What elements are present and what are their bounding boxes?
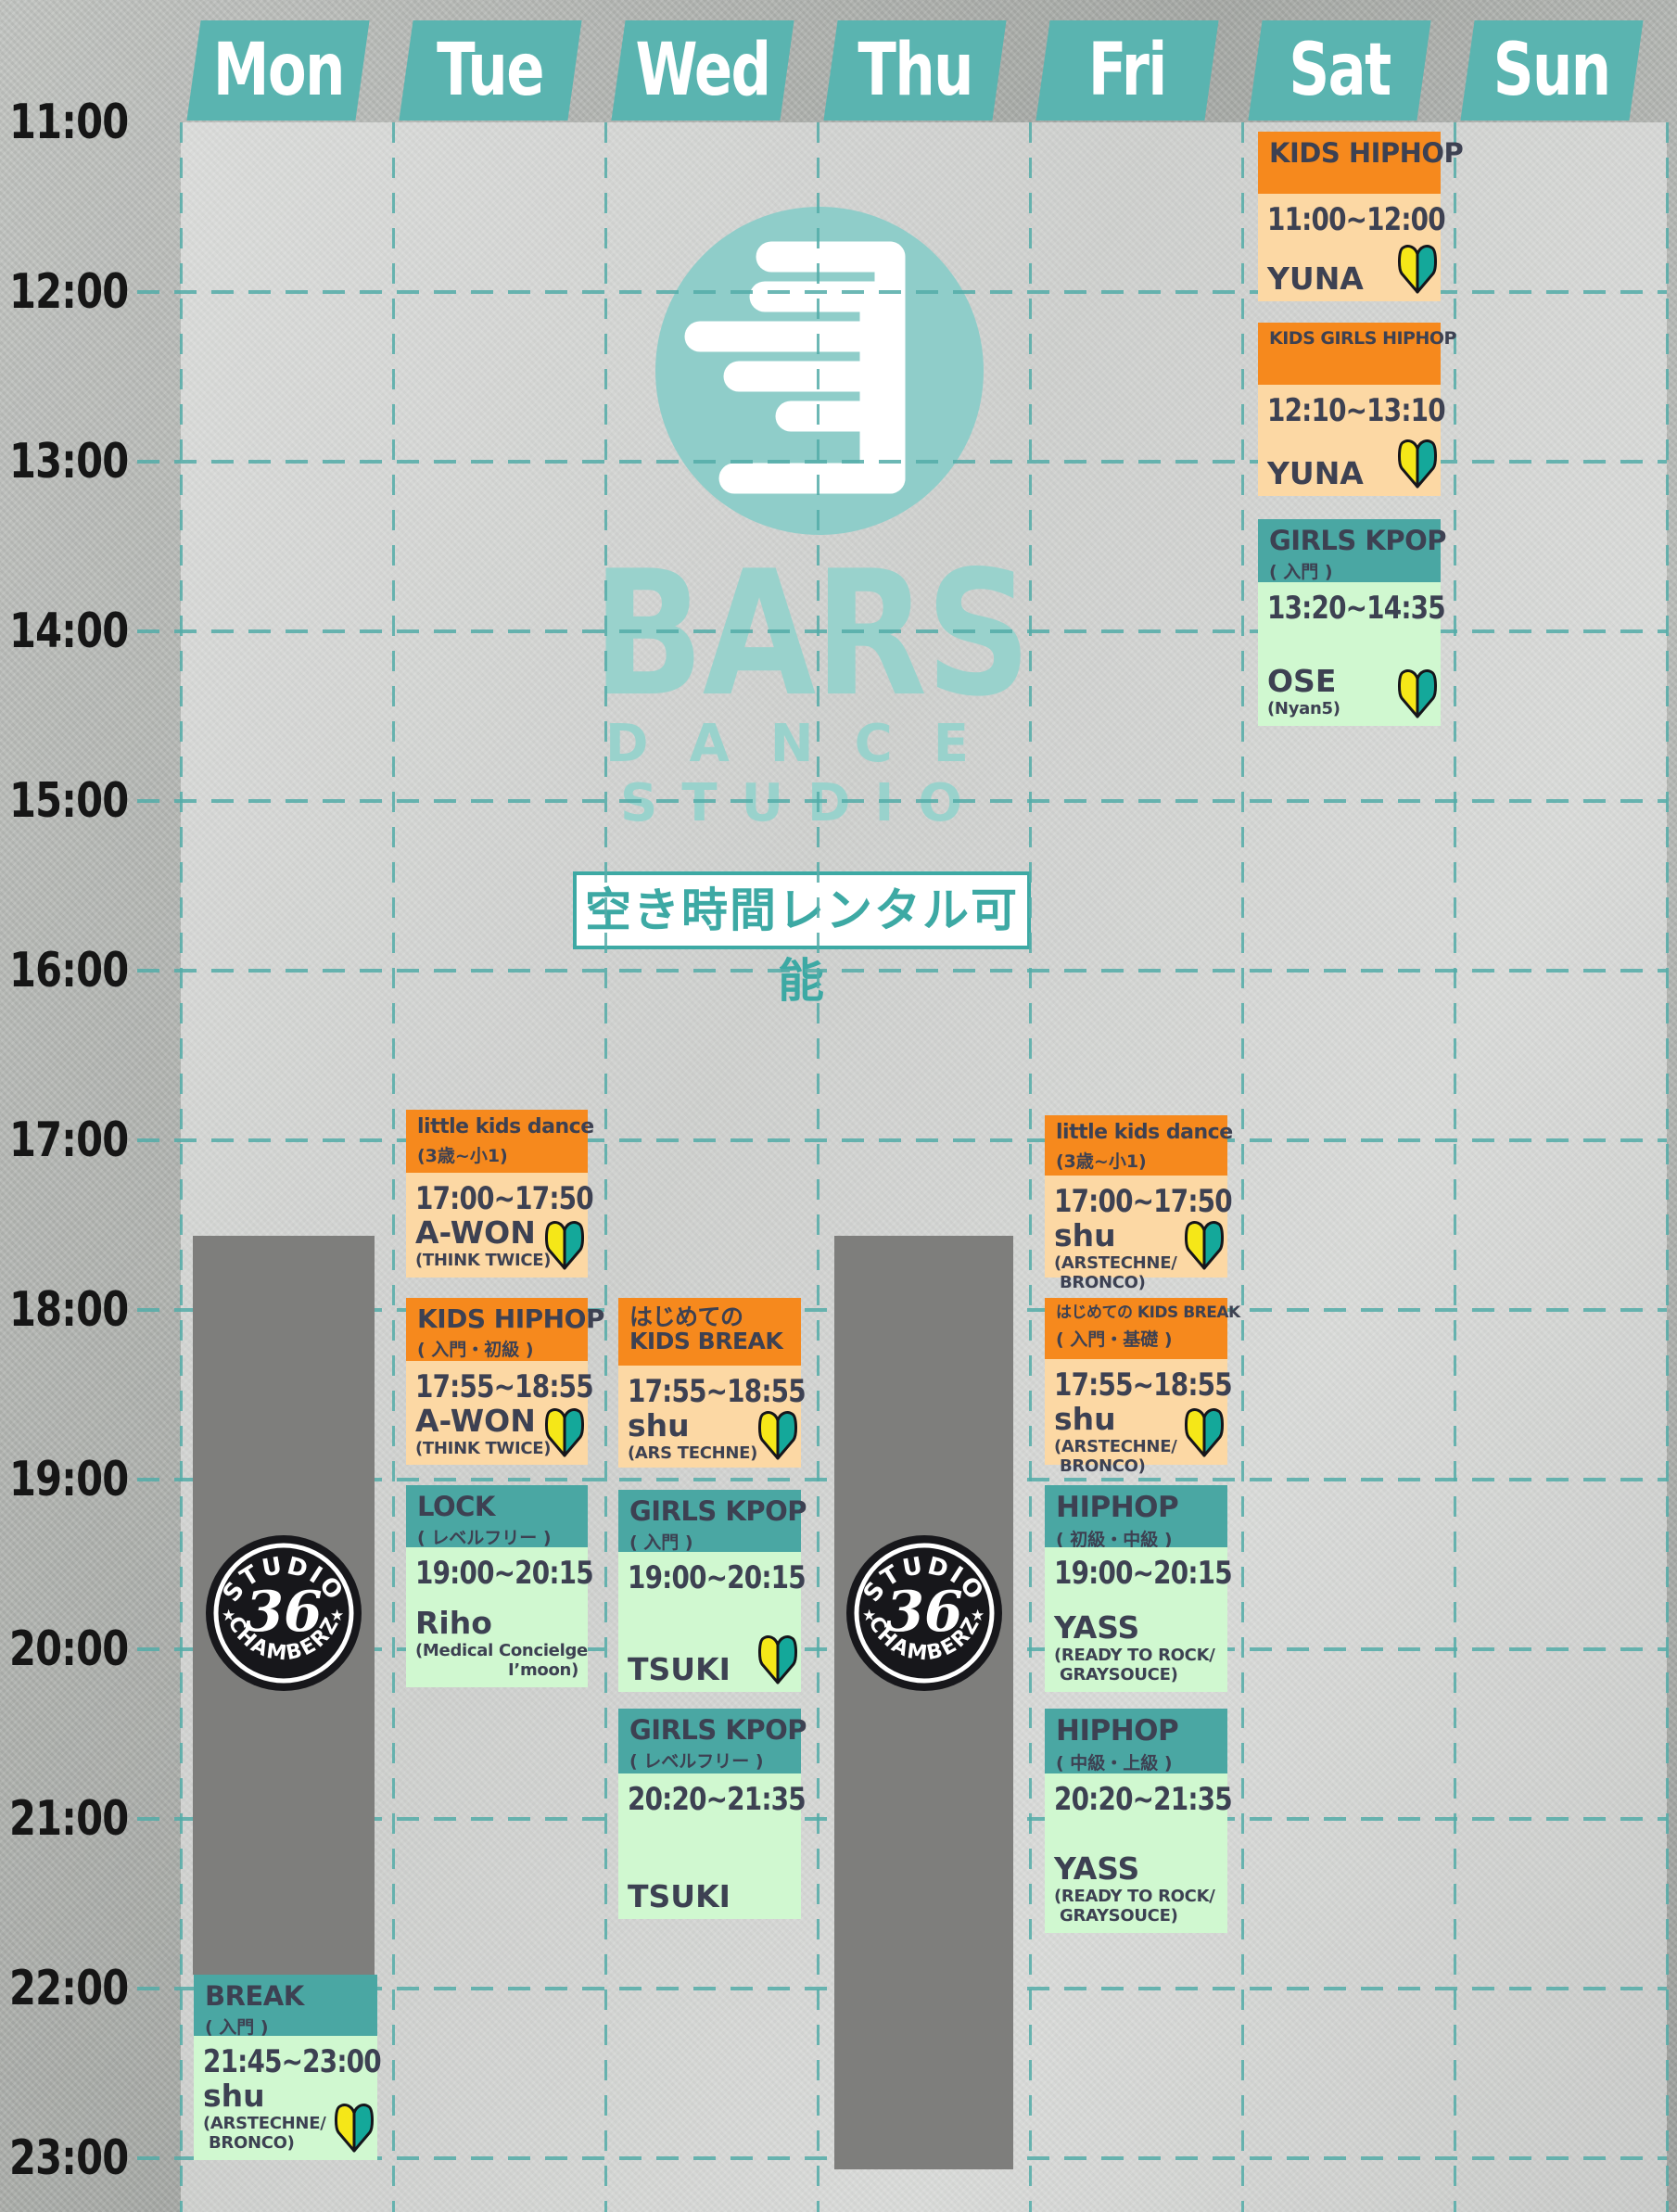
class-title: GIRLS KPOP (1269, 527, 1429, 554)
studio36-logo-icon: STUDIO CHAMBERZ 36 ★ ★ (845, 1534, 1003, 1692)
svg-text:★: ★ (862, 1607, 876, 1625)
grid-vline (817, 122, 819, 2212)
beginner-mark-icon (543, 1218, 586, 1272)
grid-vline (1666, 122, 1669, 2212)
class-card: GIRLS KPOP( 入門 )13:20~14:35OSE(Nyan5) (1258, 519, 1441, 726)
class-card-header: LOCK( レベルフリー ) (406, 1485, 588, 1547)
class-level: ( 入門 ) (629, 1529, 790, 1554)
class-card-body: 19:00~20:15Riho(Medical ConcielgeI’moon) (406, 1547, 588, 1687)
class-time: 19:00~20:15 (1054, 1555, 1188, 1592)
class-time: 17:00~17:50 (1054, 1183, 1188, 1220)
brand-name: BARS (592, 553, 1002, 718)
class-card: BREAK( 入門 )21:45~23:00shu(ARSTECHNE/BRON… (194, 1975, 377, 2160)
class-card-body: 17:55~18:55shu(ARSTECHNE/BRONCO) (1045, 1359, 1227, 1465)
day-banner-label: Fri (1088, 29, 1166, 112)
class-title: KIDS GIRLS HIPHOP (1269, 330, 1429, 349)
hour-label: 14:00 (9, 604, 128, 659)
svg-text:36: 36 (245, 1580, 323, 1645)
hour-label: 18:00 (9, 1282, 128, 1338)
class-card-header: KIDS GIRLS HIPHOP (1258, 323, 1441, 385)
class-card: HIPHOP( 初級・中級 )19:00~20:15YASS(READY TO … (1045, 1485, 1227, 1692)
class-title: little kids dance (417, 1117, 577, 1138)
class-card-body: 20:20~21:35TSUKI (618, 1773, 801, 1919)
day-banner-label: Sat (1289, 29, 1390, 112)
day-banner-wed: Wed (611, 20, 794, 121)
class-time: 20:20~21:35 (1054, 1781, 1188, 1818)
grid-vline (1029, 122, 1032, 2212)
class-card-header: HIPHOP( 初級・中級 ) (1045, 1485, 1227, 1547)
class-title: はじめての KIDS BREAK (1056, 1305, 1216, 1322)
instructor-block: YASS(READY TO ROCK/GRAYSOUCE) (1054, 1853, 1218, 1926)
grid-vline (1241, 122, 1244, 2212)
svg-text:36: 36 (885, 1580, 963, 1645)
class-card-header: little kids dance(3歳~小1) (1045, 1115, 1227, 1176)
class-card: little kids dance(3歳~小1)17:00~17:50A-WON… (406, 1110, 588, 1278)
class-time: 19:00~20:15 (415, 1555, 549, 1592)
class-title: はじめてのKIDS BREAK (629, 1305, 790, 1354)
instructor-block: YASS(READY TO ROCK/GRAYSOUCE) (1054, 1612, 1218, 1684)
class-title: GIRLS KPOP (629, 1716, 790, 1744)
hour-label: 22:00 (9, 1961, 128, 2016)
class-card-body: 17:00~17:50A-WON(THINK TWICE) (406, 1173, 588, 1278)
class-card-header: little kids dance(3歳~小1) (406, 1110, 588, 1173)
beginner-mark-icon (1183, 1405, 1226, 1459)
grid-hline (137, 969, 1667, 973)
class-card-header: HIPHOP( 中級・上級 ) (1045, 1709, 1227, 1773)
class-card: KIDS HIPHOP11:00~12:00YUNA (1258, 132, 1441, 301)
day-banner-tue: Tue (399, 20, 581, 121)
class-card: はじめてのKIDS BREAK17:55~18:55shu(ARS TECHNE… (618, 1298, 801, 1468)
class-level: (3歳~小1) (1056, 1148, 1216, 1173)
class-card-body: 19:00~20:15TSUKI (618, 1552, 801, 1692)
class-card-body: 21:45~23:00shu(ARSTECHNE/BRONCO) (194, 2036, 377, 2160)
hour-label: 23:00 (9, 2130, 128, 2186)
class-card: GIRLS KPOP( 入門 )19:00~20:15TSUKI (618, 1490, 801, 1692)
instructor-name: YASS (1054, 1853, 1218, 1884)
beginner-mark-icon (756, 1633, 799, 1686)
class-title: BREAK (205, 1982, 366, 2010)
class-title: LOCK (417, 1493, 577, 1520)
grid-vline (180, 122, 183, 2212)
bars-studio-logo-icon (655, 207, 984, 535)
studio36-bar-mon: STUDIO CHAMBERZ 36 ★ ★ (193, 1236, 375, 1975)
class-card-header: GIRLS KPOP( 入門 ) (618, 1490, 801, 1552)
hour-label: 17:00 (9, 1112, 128, 1168)
class-time: 20:20~21:35 (628, 1781, 762, 1818)
instructor-name: YASS (1054, 1612, 1218, 1643)
class-time: 21:45~23:00 (203, 2043, 338, 2080)
class-time: 17:55~18:55 (628, 1373, 762, 1410)
class-card-body: 13:20~14:35OSE(Nyan5) (1258, 582, 1441, 726)
class-title: little kids dance (1056, 1123, 1216, 1144)
rental-availability-banner: 空き時間レンタル可能 (573, 871, 1031, 949)
brand-word-dance: DANCE (556, 714, 1038, 774)
hour-label: 12:00 (9, 264, 128, 320)
class-level: (3歳~小1) (417, 1142, 577, 1167)
day-banner-label: Sun (1493, 29, 1610, 112)
beginner-mark-icon (1396, 437, 1439, 490)
class-card-header: はじめてのKIDS BREAK (618, 1298, 801, 1366)
studio36-bar-thu: STUDIO CHAMBERZ 36 ★ ★ (834, 1236, 1013, 2169)
class-card: HIPHOP( 中級・上級 )20:20~21:35YASS(READY TO … (1045, 1709, 1227, 1933)
hour-label: 20:00 (9, 1621, 128, 1677)
instructor-crew: (READY TO ROCK/GRAYSOUCE) (1054, 1887, 1218, 1926)
class-title: HIPHOP (1056, 1716, 1216, 1746)
grid-hline (137, 1138, 1667, 1142)
class-time: 17:00~17:50 (415, 1180, 549, 1217)
hour-label: 19:00 (9, 1452, 128, 1507)
studio36-logo-icon: STUDIO CHAMBERZ 36 ★ ★ (205, 1534, 362, 1692)
beginner-mark-icon (543, 1405, 586, 1459)
day-banner-mon: Mon (186, 20, 369, 121)
class-card-header: GIRLS KPOP( レベルフリー ) (618, 1709, 801, 1773)
hour-label: 13:00 (9, 434, 128, 489)
class-time: 12:10~13:10 (1267, 392, 1402, 429)
class-level: ( 中級・上級 ) (1056, 1749, 1216, 1774)
instructor-name: Riho (415, 1608, 578, 1638)
class-card-header: はじめての KIDS BREAK( 入門・基礎 ) (1045, 1298, 1227, 1359)
class-card-header: BREAK( 入門 ) (194, 1975, 377, 2036)
class-card-header: GIRLS KPOP( 入門 ) (1258, 519, 1441, 582)
beginner-mark-icon (1396, 242, 1439, 296)
class-card-body: 20:20~21:35YASS(READY TO ROCK/GRAYSOUCE) (1045, 1773, 1227, 1933)
class-card: LOCK( レベルフリー )19:00~20:15Riho(Medical Co… (406, 1485, 588, 1687)
day-banner-sun: Sun (1460, 20, 1643, 121)
class-level: ( レベルフリー ) (417, 1524, 577, 1549)
class-title: KIDS HIPHOP (1269, 139, 1429, 167)
beginner-mark-icon (333, 2101, 375, 2155)
beginner-mark-icon (1396, 667, 1439, 720)
class-title: HIPHOP (1056, 1493, 1216, 1522)
svg-text:★: ★ (222, 1607, 235, 1625)
class-card-body: 17:00~17:50shu(ARSTECHNE/BRONCO) (1045, 1176, 1227, 1278)
day-banner-label: Thu (858, 29, 972, 112)
beginner-mark-icon (756, 1408, 799, 1462)
class-card-body: 11:00~12:00YUNA (1258, 194, 1441, 301)
class-level: ( レベルフリー ) (629, 1748, 790, 1773)
day-banner-sat: Sat (1248, 20, 1430, 121)
hour-label: 15:00 (9, 773, 128, 829)
day-banner-fri: Fri (1035, 20, 1218, 121)
class-card-header: KIDS HIPHOP (1258, 132, 1441, 194)
class-card: KIDS GIRLS HIPHOP12:10~13:10YUNA (1258, 323, 1441, 496)
class-card: GIRLS KPOP( レベルフリー )20:20~21:35TSUKI (618, 1709, 801, 1919)
instructor-name: TSUKI (628, 1881, 792, 1912)
class-title: KIDS HIPHOP (417, 1305, 577, 1332)
hour-label: 21:00 (9, 1791, 128, 1847)
instructor-block: TSUKI (628, 1881, 792, 1912)
svg-text:★: ★ (971, 1607, 985, 1625)
class-card-body: 17:55~18:55A-WON(THINK TWICE) (406, 1361, 588, 1465)
day-banner-thu: Thu (823, 20, 1006, 121)
class-level: ( 入門 ) (1269, 558, 1429, 583)
class-card: little kids dance(3歳~小1)17:00~17:50shu(A… (1045, 1115, 1227, 1278)
class-time: 13:20~14:35 (1267, 590, 1402, 627)
grid-vline (604, 122, 607, 2212)
class-card-body: 19:00~20:15YASS(READY TO ROCK/GRAYSOUCE) (1045, 1547, 1227, 1692)
hour-label: 16:00 (9, 943, 128, 998)
grid-vline (1454, 122, 1456, 2212)
class-card: はじめての KIDS BREAK( 入門・基礎 )17:55~18:55shu(… (1045, 1298, 1227, 1465)
day-banner-label: Tue (438, 29, 544, 112)
brand-word-studio: STUDIO (556, 773, 1038, 833)
day-banner-label: Mon (213, 29, 344, 112)
class-card-header: KIDS HIPHOP( 入門・初級 ) (406, 1298, 588, 1361)
schedule-poster: BARS DANCE STUDIO 空き時間レンタル可能 MonTueWedTh… (0, 0, 1677, 2212)
instructor-block: Riho(Medical ConcielgeI’moon) (415, 1608, 578, 1680)
day-banner-label: Wed (635, 29, 769, 112)
class-card-body: 12:10~13:10YUNA (1258, 385, 1441, 496)
class-time: 17:55~18:55 (415, 1368, 549, 1405)
class-level: ( 入門・基礎 ) (1056, 1326, 1216, 1351)
grid-hline (137, 799, 1667, 803)
class-time: 11:00~12:00 (1267, 201, 1402, 238)
class-card-body: 17:55~18:55shu(ARS TECHNE) (618, 1366, 801, 1468)
instructor-crew: (Medical ConcielgeI’moon) (415, 1641, 578, 1680)
class-card: KIDS HIPHOP( 入門・初級 )17:55~18:55A-WON(THI… (406, 1298, 588, 1465)
beginner-mark-icon (1183, 1218, 1226, 1272)
class-level: ( 入門・初級 ) (417, 1336, 577, 1361)
grid-vline (392, 122, 395, 2212)
class-title: GIRLS KPOP (629, 1497, 790, 1525)
class-time: 17:55~18:55 (1054, 1367, 1188, 1404)
hour-label: 11:00 (9, 95, 128, 150)
instructor-crew: (READY TO ROCK/GRAYSOUCE) (1054, 1646, 1218, 1684)
svg-text:★: ★ (330, 1607, 344, 1625)
class-time: 19:00~20:15 (628, 1559, 762, 1596)
